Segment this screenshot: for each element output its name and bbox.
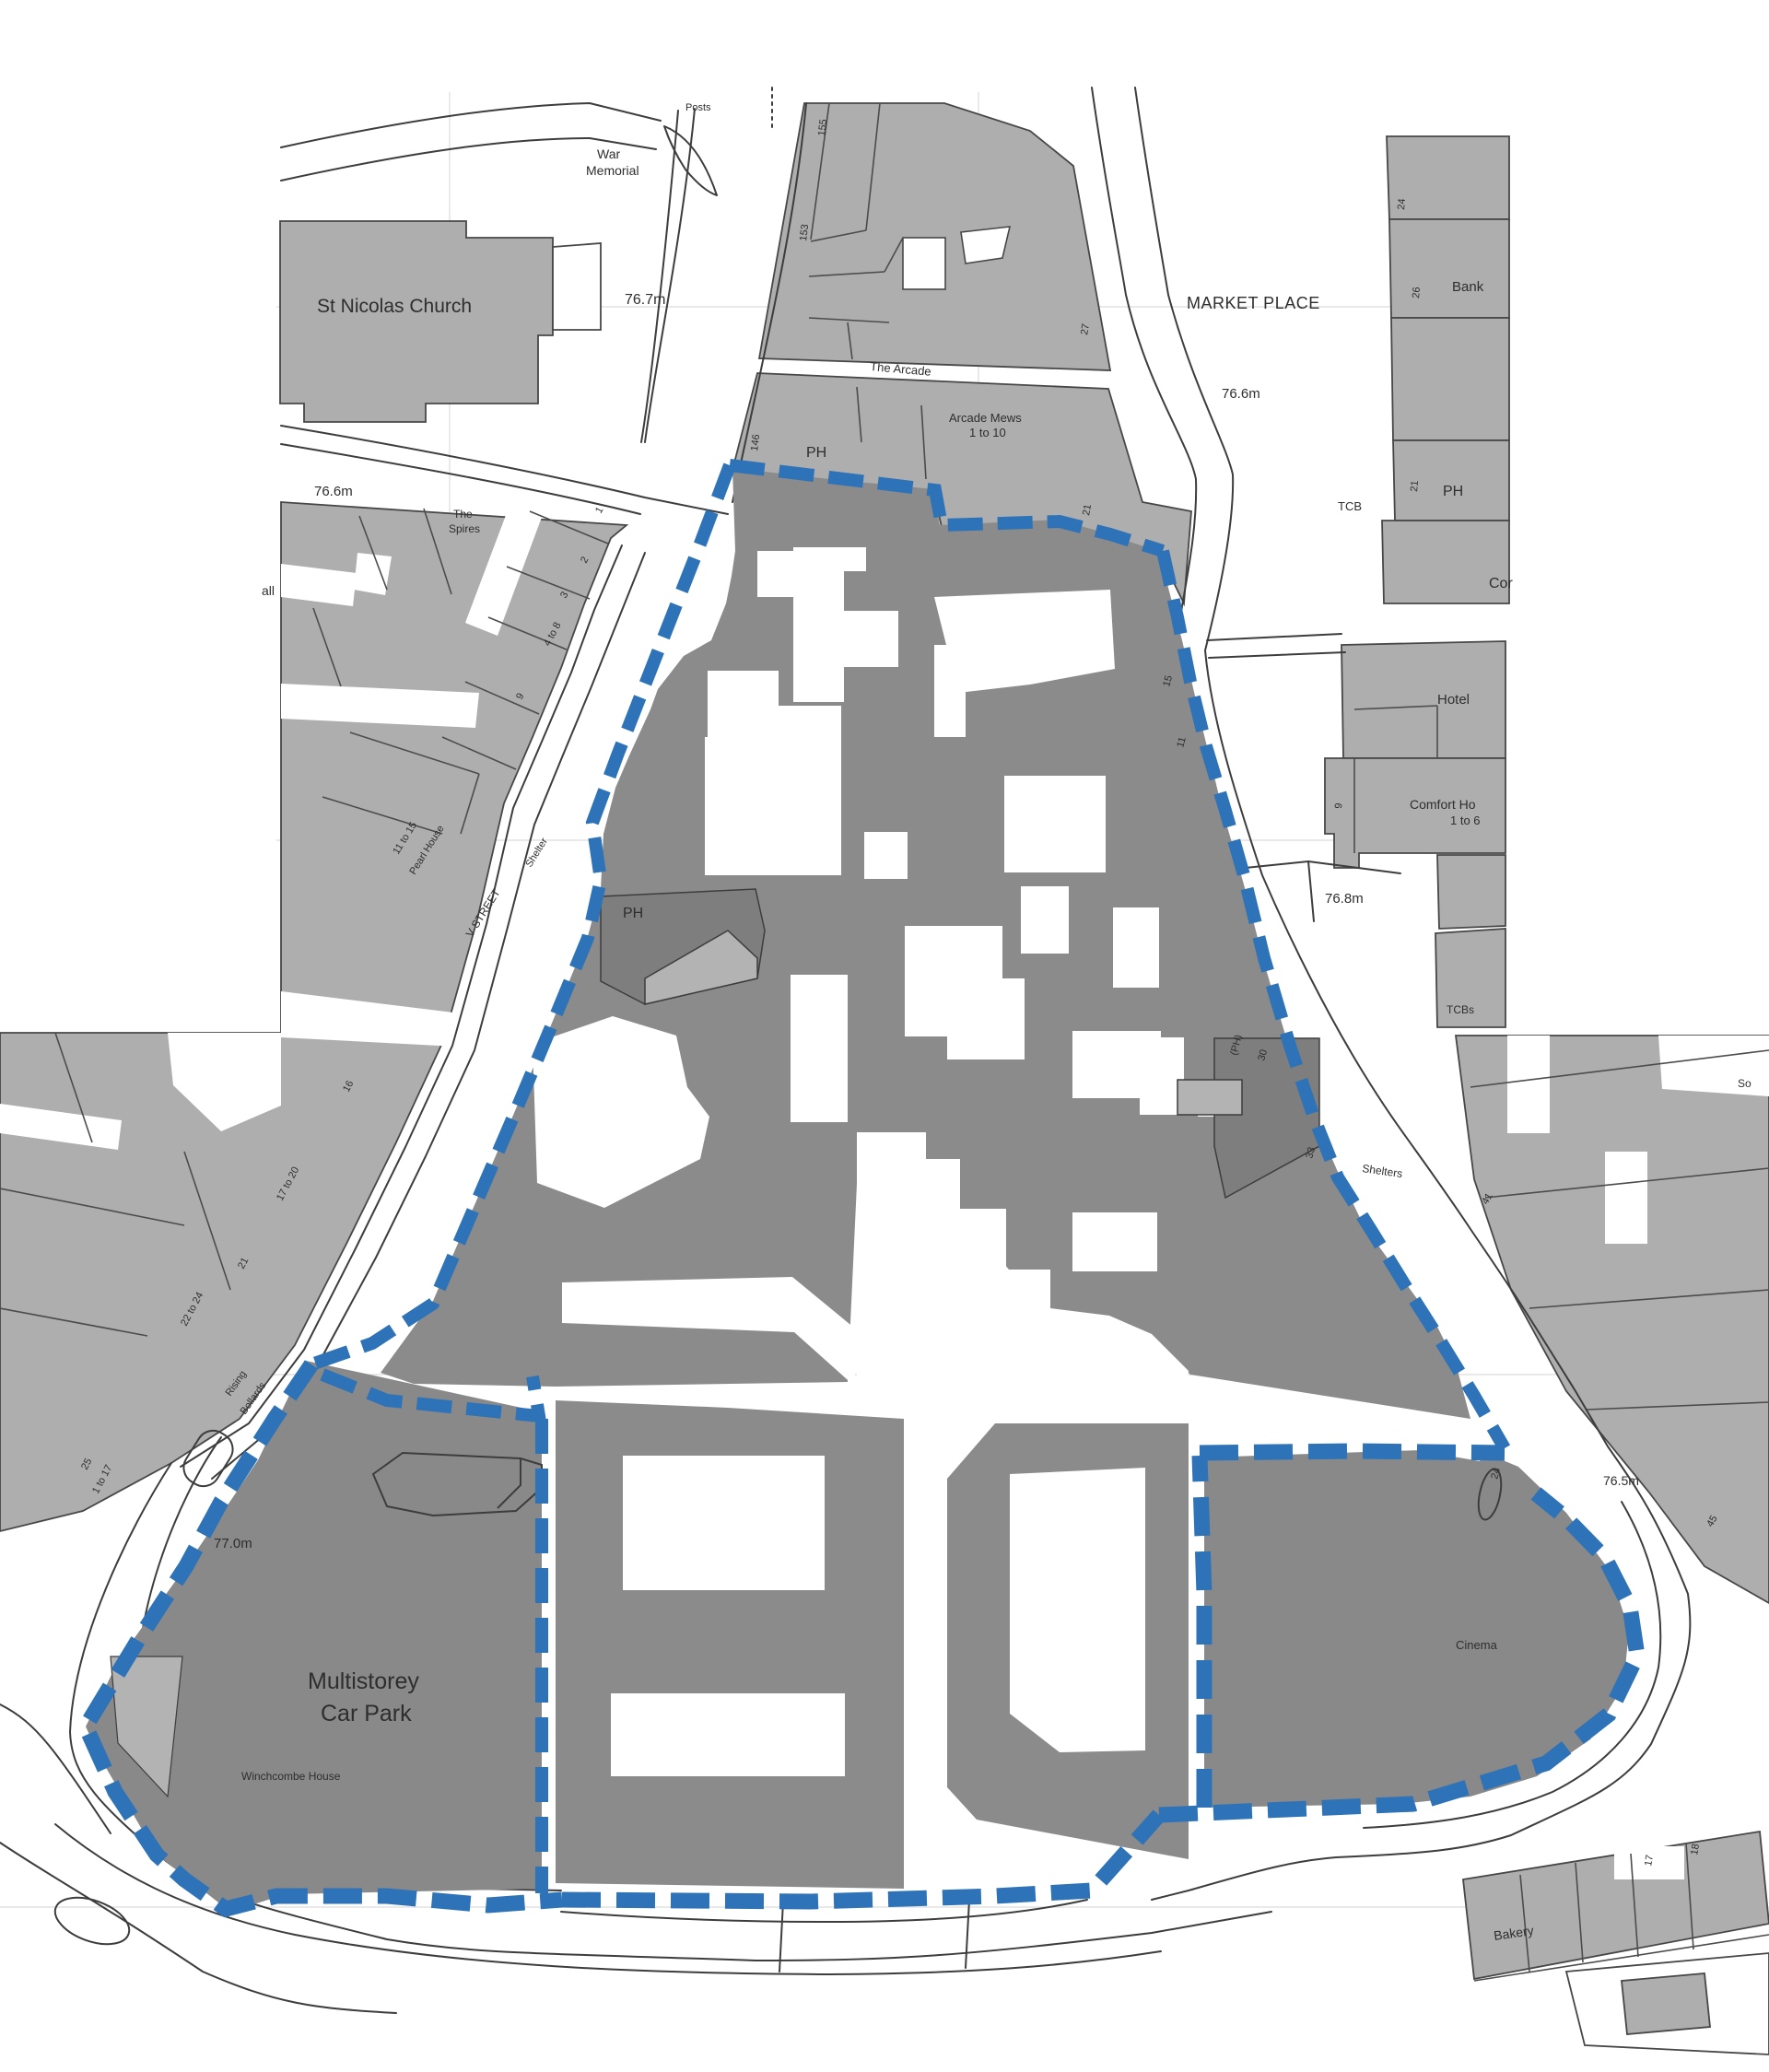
svg-text:Spires: Spires bbox=[449, 522, 480, 535]
svg-text:War: War bbox=[597, 146, 620, 161]
svg-text:TCB: TCB bbox=[1338, 499, 1362, 513]
svg-text:PH: PH bbox=[806, 445, 826, 461]
svg-text:PH: PH bbox=[1443, 484, 1463, 499]
svg-text:MARKET PLACE: MARKET PLACE bbox=[1187, 294, 1320, 312]
svg-text:17: 17 bbox=[1643, 1854, 1656, 1867]
svg-text:27: 27 bbox=[1079, 322, 1092, 335]
svg-text:Car Park: Car Park bbox=[321, 1701, 412, 1727]
svg-text:1 to 6: 1 to 6 bbox=[1450, 814, 1481, 827]
svg-text:all: all bbox=[262, 583, 275, 598]
svg-text:St Nicolas Church: St Nicolas Church bbox=[317, 296, 472, 317]
svg-text:21: 21 bbox=[1081, 503, 1094, 516]
svg-text:77.0m: 77.0m bbox=[214, 1536, 252, 1551]
svg-text:76.8m: 76.8m bbox=[1325, 891, 1364, 907]
svg-text:Arcade Mews: Arcade Mews bbox=[949, 411, 1022, 425]
svg-text:Hotel: Hotel bbox=[1437, 692, 1470, 708]
svg-text:Multistorey: Multistorey bbox=[308, 1668, 419, 1694]
svg-text:Posts: Posts bbox=[685, 102, 711, 113]
svg-text:18: 18 bbox=[1689, 1843, 1702, 1855]
svg-text:76.6m: 76.6m bbox=[1222, 386, 1260, 402]
svg-text:PH: PH bbox=[623, 906, 643, 921]
svg-text:Bank: Bank bbox=[1452, 279, 1484, 295]
svg-text:76.6m: 76.6m bbox=[314, 484, 353, 499]
svg-text:26: 26 bbox=[1411, 287, 1423, 299]
svg-text:76.5m: 76.5m bbox=[1603, 1473, 1639, 1488]
svg-text:The: The bbox=[453, 508, 473, 521]
svg-text:TCBs: TCBs bbox=[1447, 1003, 1474, 1016]
svg-text:9: 9 bbox=[1333, 802, 1344, 809]
svg-text:24: 24 bbox=[1396, 198, 1408, 210]
svg-text:155: 155 bbox=[816, 119, 829, 137]
svg-text:153: 153 bbox=[798, 224, 811, 242]
svg-text:21: 21 bbox=[1409, 480, 1421, 492]
svg-text:Comfort Ho: Comfort Ho bbox=[1410, 797, 1476, 812]
svg-text:Cor: Cor bbox=[1489, 576, 1513, 591]
svg-text:Memorial: Memorial bbox=[586, 163, 639, 178]
svg-text:1 to 10: 1 to 10 bbox=[969, 426, 1006, 439]
svg-text:76.7m: 76.7m bbox=[625, 292, 665, 308]
svg-text:Winchcombe House: Winchcombe House bbox=[241, 1770, 341, 1783]
svg-text:146: 146 bbox=[749, 434, 762, 452]
svg-text:Cinema: Cinema bbox=[1456, 1638, 1498, 1652]
svg-text:So: So bbox=[1738, 1077, 1751, 1090]
